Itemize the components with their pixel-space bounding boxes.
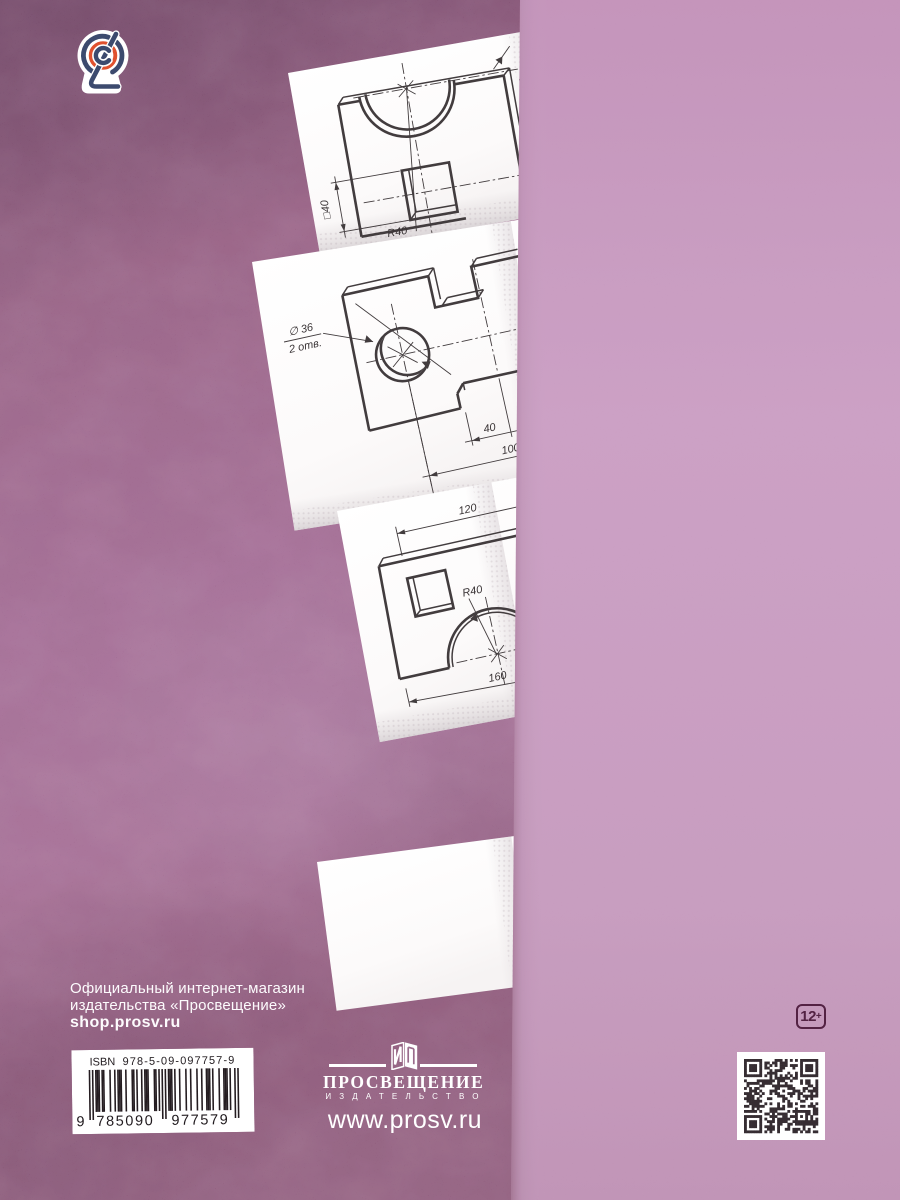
- svg-text:ISBN: ISBN: [89, 1056, 115, 1068]
- svg-text:978-5-09-097757-9: 978-5-09-097757-9: [122, 1054, 235, 1068]
- svg-text:977579: 977579: [171, 1112, 229, 1129]
- svg-text:9: 9: [76, 1114, 84, 1130]
- svg-text:785090: 785090: [96, 1113, 154, 1130]
